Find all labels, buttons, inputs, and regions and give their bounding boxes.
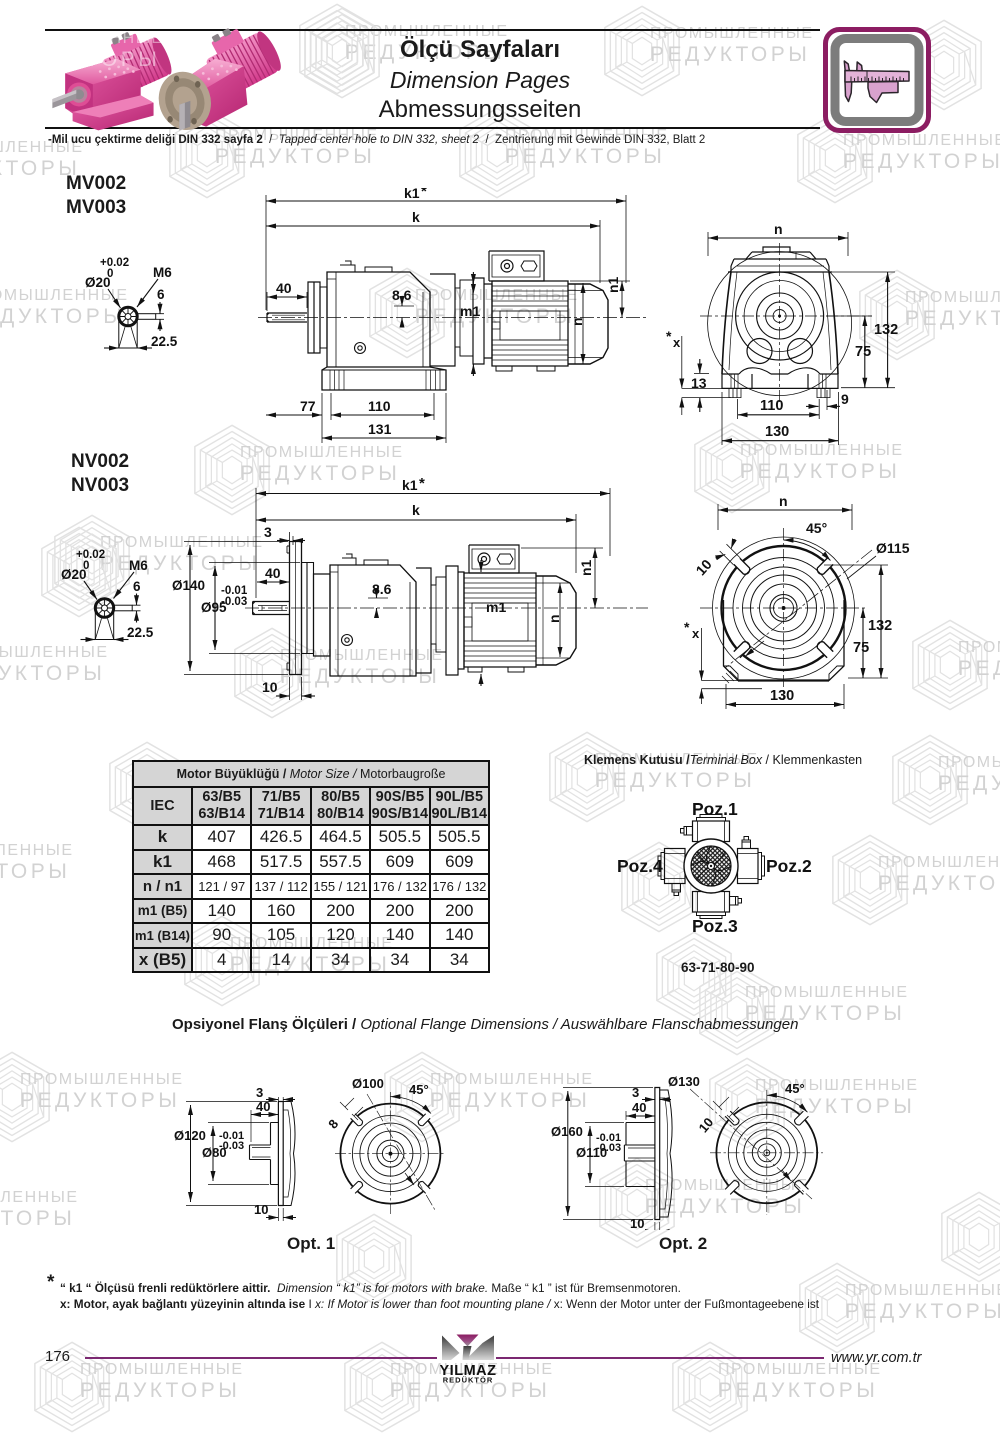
svg-text:M6: M6 <box>129 558 148 573</box>
svg-text:110: 110 <box>760 398 783 414</box>
svg-text:Ø20: Ø20 <box>61 567 87 582</box>
svg-text:10: 10 <box>630 1216 644 1230</box>
svg-text:3: 3 <box>256 1085 263 1100</box>
svg-text:Poz.1: Poz.1 <box>692 799 738 819</box>
svg-text:75: 75 <box>855 344 871 360</box>
svg-text:6: 6 <box>157 287 165 302</box>
svg-text:77: 77 <box>300 398 316 414</box>
svg-text:8: 8 <box>325 1116 341 1131</box>
svg-text:n: n <box>546 614 562 623</box>
svg-text:131: 131 <box>368 421 392 437</box>
svg-text:Ø100: Ø100 <box>352 1076 384 1091</box>
svg-text:m1: m1 <box>486 599 506 615</box>
svg-text:22.5: 22.5 <box>151 334 178 349</box>
svg-text:6: 6 <box>133 579 141 594</box>
svg-text:Ø120: Ø120 <box>174 1128 206 1143</box>
svg-text:45°: 45° <box>409 1082 429 1097</box>
svg-text:k1: k1 <box>402 478 418 493</box>
svg-text:Ø130: Ø130 <box>668 1074 700 1089</box>
svg-text:n: n <box>774 225 783 237</box>
svg-text:*: * <box>419 478 425 492</box>
svg-text:3: 3 <box>264 524 272 540</box>
svg-text:Poz.4: Poz.4 <box>617 856 663 876</box>
svg-text:REDÜKTÖR: REDÜKTÖR <box>443 1376 494 1384</box>
svg-text:-0.03: -0.03 <box>219 1140 244 1152</box>
svg-text:+0.02: +0.02 <box>76 549 105 561</box>
svg-text:*: * <box>684 619 690 635</box>
svg-text:k: k <box>412 209 420 225</box>
svg-text:132: 132 <box>868 618 892 634</box>
svg-text:40: 40 <box>276 280 292 296</box>
svg-text:10: 10 <box>262 679 278 695</box>
svg-text:m1: m1 <box>460 303 480 319</box>
svg-text:M6: M6 <box>153 265 172 280</box>
svg-text:Ø160: Ø160 <box>551 1124 583 1139</box>
svg-text:Poz.3: Poz.3 <box>692 916 738 936</box>
svg-text:9: 9 <box>841 391 849 407</box>
svg-text:Ø20: Ø20 <box>85 275 111 290</box>
svg-text:Ø140: Ø140 <box>172 578 205 593</box>
svg-text:10: 10 <box>696 1115 717 1136</box>
svg-text:130: 130 <box>770 688 794 704</box>
svg-text:+0.02: +0.02 <box>100 257 129 269</box>
svg-text:10: 10 <box>693 556 715 578</box>
svg-text:n: n <box>569 317 585 326</box>
svg-text:*: * <box>421 188 427 200</box>
svg-text:k1: k1 <box>404 188 420 201</box>
svg-text:n1: n1 <box>578 559 594 576</box>
svg-text:-0.03: -0.03 <box>596 1142 621 1154</box>
svg-text:x: x <box>692 626 700 641</box>
svg-text:40: 40 <box>632 1100 646 1115</box>
svg-text:45°: 45° <box>806 520 827 536</box>
svg-text:n1: n1 <box>605 276 621 293</box>
svg-text:10: 10 <box>254 1202 268 1217</box>
svg-text:k: k <box>412 502 420 518</box>
svg-text:45°: 45° <box>785 1081 805 1096</box>
svg-text:n: n <box>779 495 788 509</box>
svg-text:-0.03: -0.03 <box>221 596 247 608</box>
svg-text:*: * <box>666 328 672 344</box>
svg-text:40: 40 <box>265 565 281 581</box>
svg-text:75: 75 <box>853 640 869 656</box>
svg-text:Ø115: Ø115 <box>876 540 910 556</box>
svg-text:110: 110 <box>368 398 391 414</box>
svg-text:130: 130 <box>765 424 789 440</box>
svg-text:132: 132 <box>874 322 898 338</box>
svg-text:x: x <box>673 335 681 350</box>
svg-text:22.5: 22.5 <box>127 625 154 640</box>
svg-text:8.6: 8.6 <box>372 581 392 597</box>
svg-text:Poz.2: Poz.2 <box>766 856 812 876</box>
